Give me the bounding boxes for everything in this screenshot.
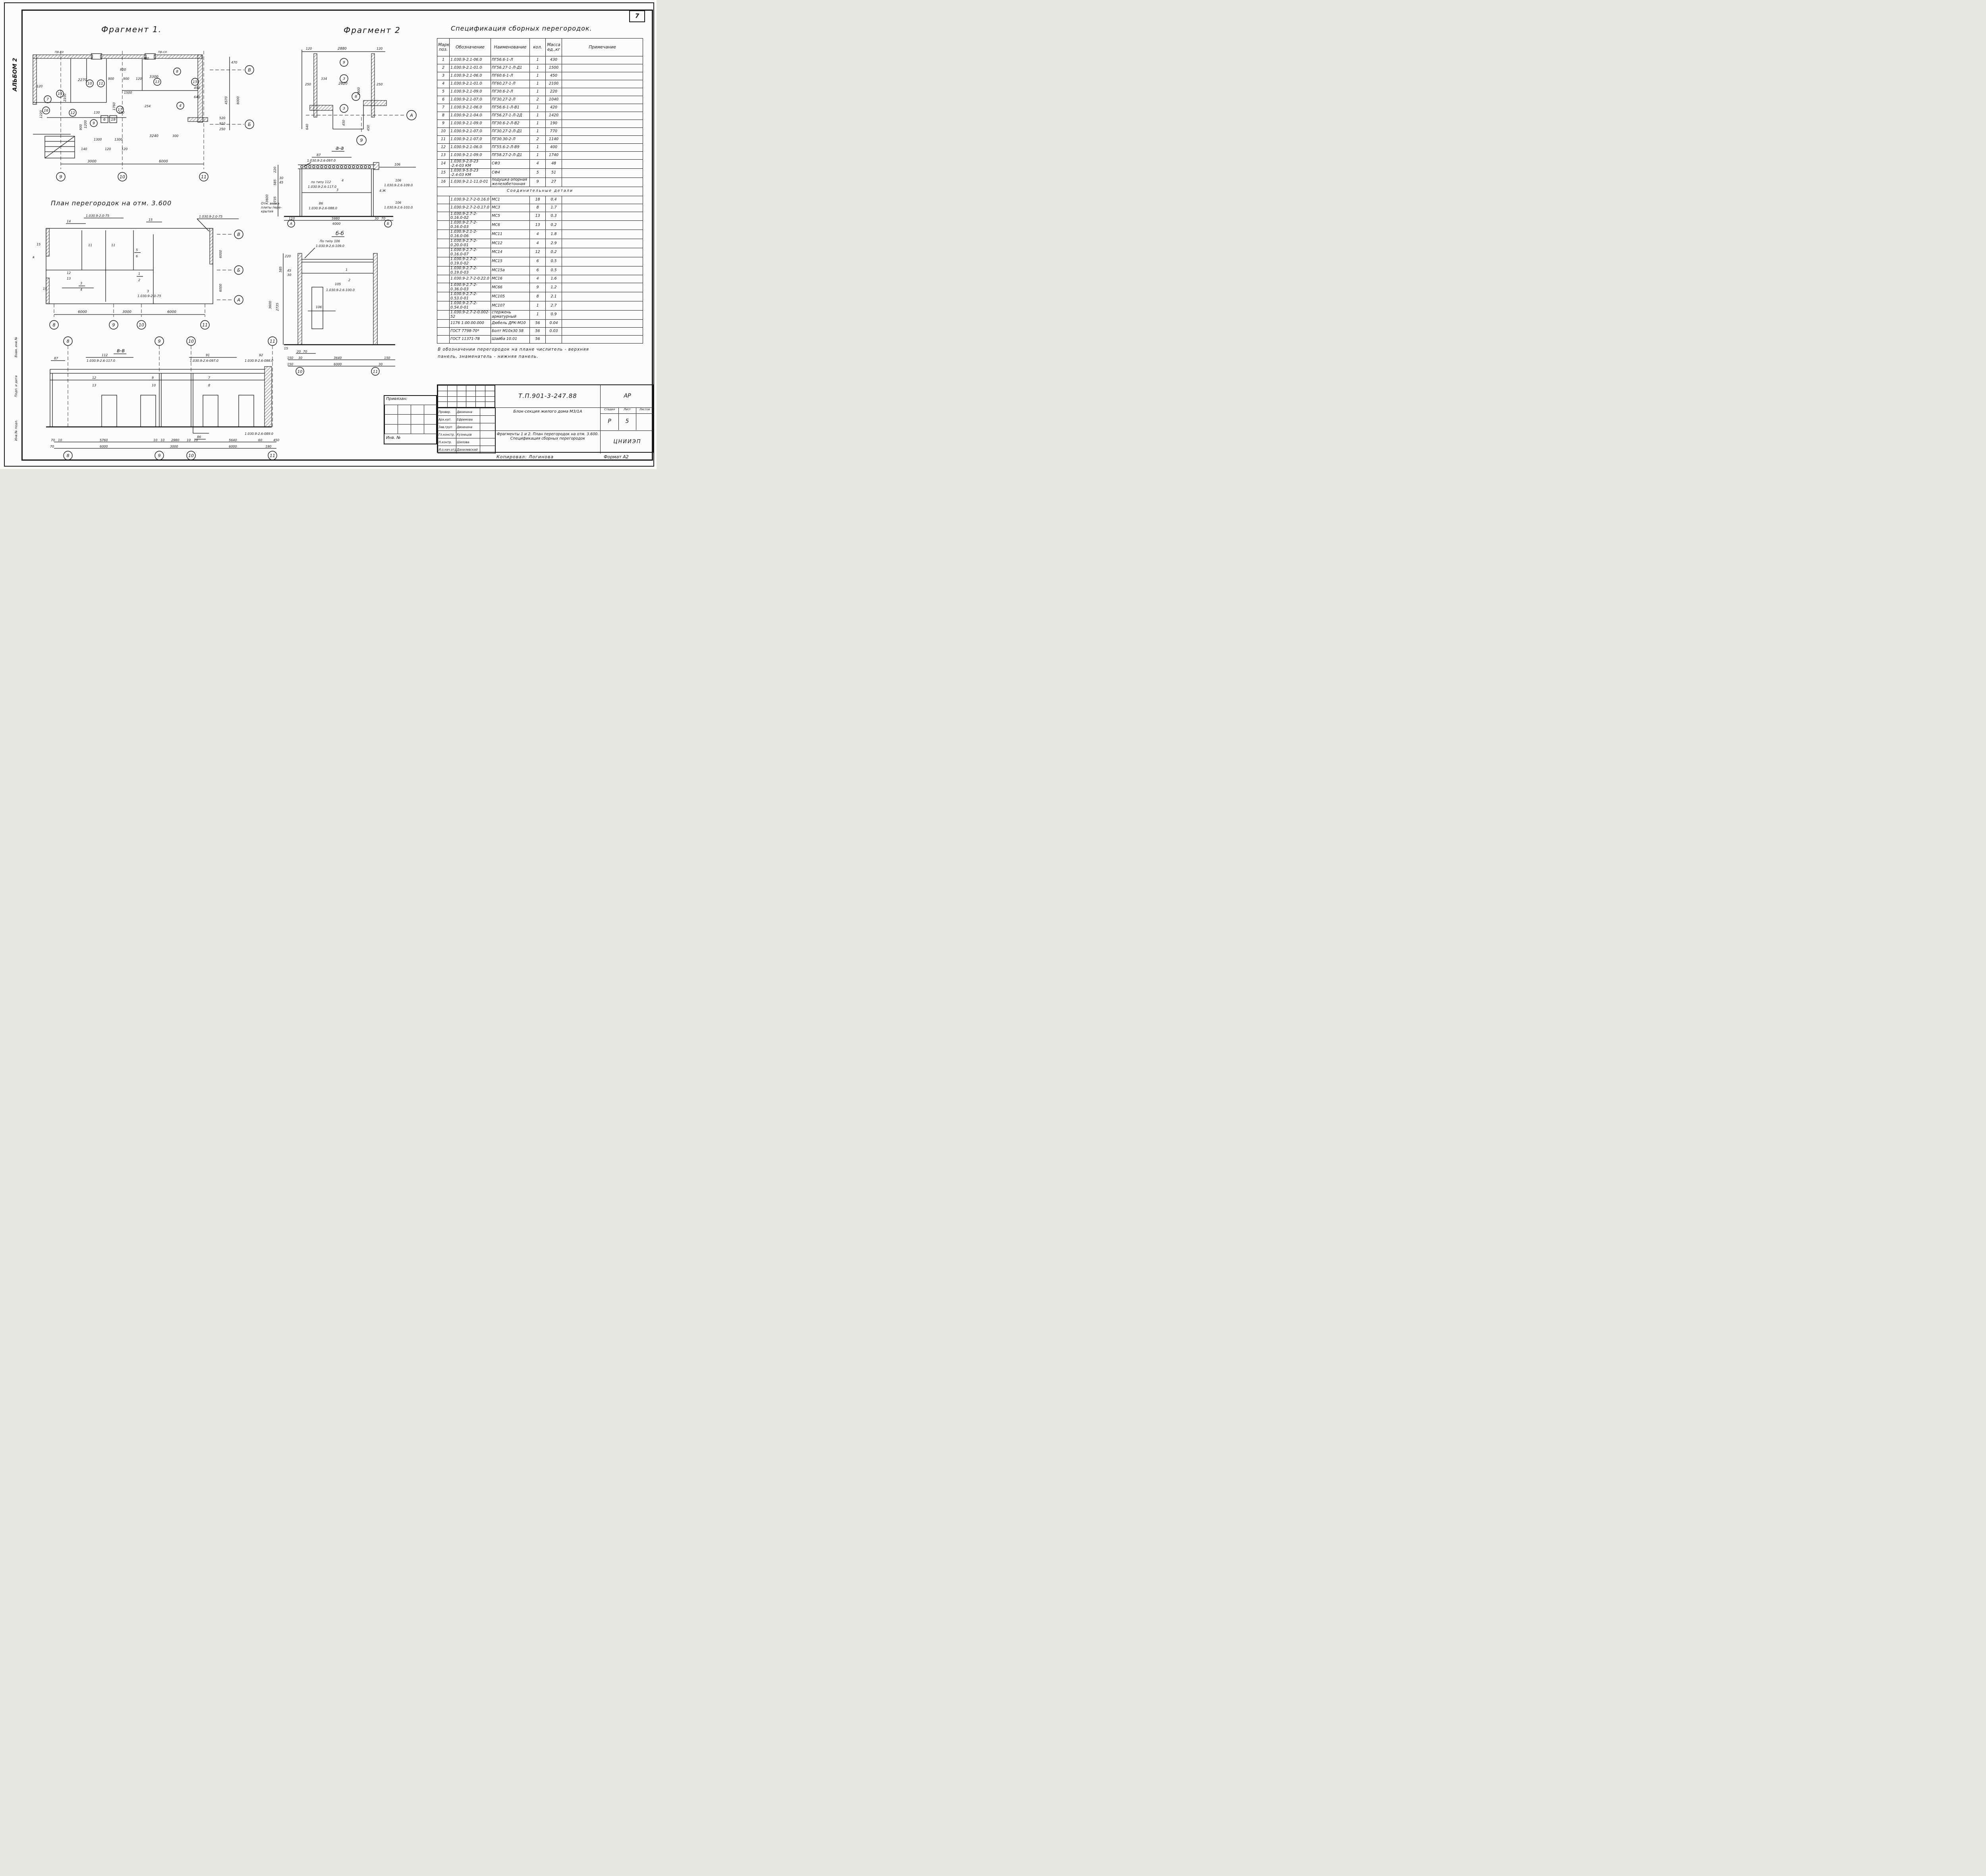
svg-text:105: 105	[335, 282, 341, 286]
table-cell	[562, 104, 643, 112]
note-line-2: панель, знаменатель - нижняя панель.	[438, 353, 652, 361]
table-cell: 4	[530, 275, 546, 283]
svg-text:Б: Б	[237, 268, 240, 273]
svg-text:16: 16	[44, 109, 48, 113]
svg-text:3: 3	[343, 77, 345, 81]
table-cell	[562, 212, 643, 221]
svg-text:11: 11	[99, 82, 103, 86]
table-cell: 1.030.9-2.7-2-0.19.0-02	[450, 257, 491, 266]
table-cell: ГОСТ 7798-70*	[450, 327, 491, 335]
table-cell: 5	[530, 168, 546, 178]
title-block: Т.П.901-3-247.88 АР Провер.ДвоининаАрх.к…	[437, 384, 653, 453]
table-row: 1.030.9-2.7-2-0.17.0МС381.7	[437, 204, 643, 212]
svg-text:б-б: б-б	[336, 231, 344, 237]
stage-value: Р	[601, 413, 619, 430]
table-cell: 4	[530, 239, 546, 248]
table-cell	[562, 56, 643, 64]
table-cell: 4	[530, 160, 546, 169]
table-cell: 1	[530, 120, 546, 128]
svg-text:пр.со: пр.со	[55, 50, 64, 54]
table-cell: Двоинина	[456, 423, 480, 431]
svg-text:15: 15	[43, 287, 47, 291]
svg-text:120: 120	[306, 47, 312, 50]
table-cell: 27	[546, 178, 562, 187]
svg-text:2: 2	[138, 278, 140, 282]
table-cell	[437, 230, 450, 239]
table-row: 131.030.9-2.1-09.0ПГ58.27-2-Л-Д111740	[437, 152, 643, 160]
svg-text:45: 45	[279, 181, 283, 184]
svg-text:91: 91	[206, 353, 210, 357]
table-cell: СФ4	[491, 168, 530, 178]
svg-text:120: 120	[122, 147, 128, 151]
svg-text:5760: 5760	[100, 438, 108, 442]
table-cell: ПГ60.27-1-Л	[491, 80, 530, 88]
table-cell: 2.1	[546, 292, 562, 301]
fragment2-drawing: 250 2620 250 120 2880 120 334 1900 450 6…	[286, 38, 421, 149]
svg-text:7: 7	[208, 376, 211, 380]
table-cell: 2.7	[546, 301, 562, 311]
svg-text:1.030.9-2.0-75: 1.030.9-2.0-75	[199, 215, 222, 218]
svg-text:470: 470	[231, 61, 237, 64]
spec-table: Марка поз. Обозначение Наименование кол.…	[437, 38, 643, 344]
table-cell: 2	[437, 64, 450, 72]
table-cell: 0.3	[546, 212, 562, 221]
table-cell: 56	[530, 335, 546, 343]
table-cell: ПГ56.6-1-Л-В1	[491, 104, 530, 112]
col-qty: кол.	[530, 39, 546, 56]
svg-text:10: 10	[187, 438, 191, 442]
svg-text:Б: Б	[387, 222, 389, 226]
table-cell	[562, 319, 643, 327]
table-row: Зав.групДвоинина	[438, 423, 496, 431]
svg-text:15: 15	[149, 218, 153, 222]
svg-text:3000: 3000	[170, 445, 178, 448]
table-cell: ПГ58.27-2-Л-Д1	[491, 152, 530, 160]
svg-text:6000: 6000	[78, 310, 87, 314]
svg-text:А: А	[410, 113, 413, 118]
svg-text:17: 17	[118, 108, 122, 112]
table-cell: стержень арматурный	[491, 310, 530, 319]
table-row: 1.030.9-2.7-2-0.002-52стержень арматурны…	[437, 310, 643, 319]
table-cell: 1.030.9-2.1-01.0	[450, 64, 491, 72]
table-cell	[437, 257, 450, 266]
table-cell: 9	[437, 120, 450, 128]
table-cell	[562, 112, 643, 120]
table-row: 141.030.9-2.0-23 -2.4-03 КМСФ3448	[437, 160, 643, 169]
svg-text:120: 120	[136, 77, 142, 81]
table-cell	[437, 335, 450, 343]
svg-text:70: 70	[50, 445, 54, 448]
table-cell: 1	[530, 301, 546, 311]
svg-text:900: 900	[108, 77, 114, 81]
table-cell: Данилевский	[456, 446, 480, 454]
svg-text:585: 585	[279, 266, 282, 272]
table-row: 1.030.9-2.7-2-0.16.0-03МС6130.2	[437, 221, 643, 230]
frag2-axis-bubbles: А 9	[357, 110, 416, 145]
table-row: 91.030.9-2.1-09.0ПГ30.6-2-Л-В21190	[437, 120, 643, 128]
svg-text:9: 9	[112, 322, 115, 328]
svg-text:10: 10	[120, 174, 125, 179]
svg-text:1.030.9-2.6-100.0: 1.030.9-2.6-100.0	[326, 288, 355, 292]
svg-text:11: 11	[270, 453, 275, 458]
table-cell: 1.030.9-2.7-2-0.20.0-01	[450, 239, 491, 248]
table-cell: 5	[437, 88, 450, 96]
table-cell: 420	[546, 104, 562, 112]
table-cell	[562, 120, 643, 128]
table-cell: 1.030.9-2.7-2-0.53.0-01	[450, 292, 491, 301]
table-cell: 6	[530, 266, 546, 275]
svg-text:1.030.9-2.6-109.0: 1.030.9-2.6-109.0	[384, 183, 413, 187]
svg-text:1.030.9-2.6-097.0: 1.030.9-2.6-097.0	[190, 359, 218, 363]
table-cell: ПГ56.6-1-Л	[491, 56, 530, 64]
sheet-label: Лист	[618, 408, 636, 414]
svg-text:150: 150	[287, 363, 293, 366]
section-aa-drawing: а-а 87 1.030.9-2.6-097.0 3 4 по типу 112…	[260, 145, 418, 228]
roles-rows: Провер.ДвоининаАрх.кат.ЕфремоваЗав.групД…	[438, 408, 496, 454]
album-label: АЛЬБОМ 2	[12, 58, 18, 91]
table-cell: МС3	[491, 204, 530, 212]
table-cell: 56	[530, 327, 546, 335]
svg-text:6: 6	[103, 118, 106, 122]
table-cell	[437, 292, 450, 301]
svg-text:300: 300	[172, 134, 178, 138]
svg-text:120: 120	[377, 47, 383, 50]
table-row: 81.030.9-2.1-04.0ПГ56.27-1-Л-2Д11420	[437, 112, 643, 120]
table-cell	[480, 416, 496, 423]
table-cell	[437, 266, 450, 275]
format-note: Формат А2	[604, 454, 629, 459]
table-cell: МС66	[491, 283, 530, 292]
table-cell: 7	[437, 104, 450, 112]
table-row: 161.030.9-2.1-11.0-01подушка опорная жел…	[437, 178, 643, 187]
svg-text:450: 450	[273, 438, 279, 442]
svg-text:120: 120	[105, 147, 111, 151]
table-cell	[562, 136, 643, 144]
table-row: 31.030.9-2.1-06.0ПГ60.6-1-Л1450	[437, 72, 643, 80]
svg-text:6000: 6000	[332, 222, 340, 226]
table-cell: Двоинина	[456, 408, 480, 416]
svg-text:30: 30	[279, 176, 283, 180]
page-number: 7	[629, 10, 645, 22]
table-cell	[480, 431, 496, 438]
table-row: 1.030.9-2.7-2-0.20.0-01МС1242.9	[437, 239, 643, 248]
svg-text:5: 5	[136, 248, 138, 252]
svg-text:150: 150	[384, 356, 390, 360]
table-row: 1.030.9-2.7-2-0.16.0-07МС14120.2	[437, 248, 643, 257]
table-cell: МС15	[491, 257, 530, 266]
svg-text:10: 10	[58, 438, 62, 442]
table-cell	[562, 239, 643, 248]
table-row: ГОСТ 11371-78Шайба 10.0156	[437, 335, 643, 343]
table-cell: ПГ30.27-2-Л-Д1	[491, 128, 530, 136]
table-row: 151.030.9-5.0-23 -2.4-03 КМСФ4551	[437, 168, 643, 178]
svg-text:1.030.9-2.6-117.0: 1.030.9-2.6-117.0	[308, 185, 336, 189]
svg-text:2880: 2880	[338, 47, 347, 51]
svg-text:1.030.9-2.6-089.0: 1.030.9-2.6-089.0	[245, 432, 273, 436]
roles-table: Провер.ДвоининаАрх.кат.ЕфремоваЗав.групД…	[438, 408, 495, 454]
svg-text:3: 3	[147, 290, 149, 293]
svg-text:11: 11	[373, 370, 378, 374]
table-cell	[562, 275, 643, 283]
svg-text:8: 8	[53, 322, 56, 328]
svg-text:1.030.9-2.6-098.0: 1.030.9-2.6-098.0	[245, 359, 273, 363]
table-cell: ПГ60.6-1-Л	[491, 72, 530, 80]
table-cell	[562, 221, 643, 230]
svg-text:9: 9	[152, 376, 154, 380]
table-cell: 1.030.9-2.7-2-0.16.0	[450, 196, 491, 204]
svg-text:1.030.9-2.6-109.0: 1.030.9-2.6-109.0	[316, 244, 344, 248]
table-cell	[562, 196, 643, 204]
svg-text:8: 8	[176, 70, 178, 74]
svg-text:106: 106	[395, 179, 401, 182]
table-cell: 1.030.9-2.1-07.0	[450, 128, 491, 136]
table-cell: 1	[530, 88, 546, 96]
svg-text:910: 910	[219, 122, 225, 125]
svg-text:220: 220	[273, 167, 277, 173]
table-cell	[480, 423, 496, 431]
svg-text:А: А	[237, 297, 240, 303]
svg-text:15: 15	[37, 243, 41, 246]
table-cell: 2	[530, 96, 546, 104]
plan-title: План перегородок на отм. 3.600	[51, 199, 172, 207]
svg-text:14: 14	[58, 92, 62, 96]
table-row: 1.030.9-2.7-2-0.19.0-03МС15а60.5	[437, 266, 643, 275]
table-cell	[437, 275, 450, 283]
svg-text:пр.со: пр.со	[158, 50, 167, 54]
table-cell: 1.030.9-2.1-07.0	[450, 136, 491, 144]
table-row: 41.030.9-2.1-01.0ПГ60.27-1-Л12100	[437, 80, 643, 88]
table-row: 1176 1.00.00.000Дюбель ДРК-М10560.04	[437, 319, 643, 327]
svg-text:106: 106	[394, 163, 400, 166]
table-cell	[546, 335, 562, 343]
svg-text:10: 10	[188, 453, 194, 458]
table-cell: Зав.груп	[438, 423, 456, 431]
table-cell	[562, 257, 643, 266]
table-cell: Шайба 10.01	[491, 335, 530, 343]
plan-3600-drawing: 1.030.9-2.0-75 14 15 1.030.9-2.0-75 15 1…	[22, 210, 261, 333]
table-cell: 15	[437, 168, 450, 178]
table-row: Н.контр.Шилова	[438, 438, 496, 446]
svg-text:8: 8	[208, 384, 210, 387]
table-row: 51.030.9-2.1-09.0ПГ30.6-2-Л1220	[437, 88, 643, 96]
svg-text:10: 10	[139, 322, 144, 328]
table-cell: 11	[437, 136, 450, 144]
table-cell: 1.8	[546, 230, 562, 239]
col-note: Примечание	[562, 39, 643, 56]
table-cell: 220	[546, 88, 562, 96]
svg-text:45: 45	[287, 269, 291, 272]
table-cell	[562, 230, 643, 239]
table-row: Арх.кат.Ефремова	[438, 416, 496, 423]
spec-rows: 11.030.9-2.1-06.0ПГ56.6-1-Л143021.030.9-…	[437, 56, 643, 187]
svg-text:10: 10	[160, 438, 164, 442]
svg-text:8: 8	[67, 453, 70, 458]
svg-text:6000: 6000	[219, 284, 222, 292]
table-cell: МС107	[491, 301, 530, 311]
svg-text:10: 10	[152, 384, 156, 387]
table-cell: 1140	[546, 136, 562, 144]
svg-text:106: 106	[316, 305, 322, 309]
table-cell: 1.030.9-2.1-04.0	[450, 112, 491, 120]
svg-text:10: 10	[194, 438, 198, 442]
table-cell: 6	[530, 257, 546, 266]
svg-text:9: 9	[343, 61, 345, 65]
table-cell: 1	[437, 56, 450, 64]
table-cell: 1.030.9-2.1-06.0	[450, 72, 491, 80]
svg-text:12: 12	[92, 376, 96, 380]
table-cell: 1.030.9-2.1-09.0	[450, 152, 491, 160]
svg-text:10: 10	[153, 438, 157, 442]
sheet-title: Фрагменты 1 и 2. План перегородок на отм…	[495, 431, 601, 454]
svg-text:254: 254	[145, 104, 151, 108]
table-cell: 2.9	[546, 239, 562, 248]
table-cell: ПГ56.27-1-Л-2Д	[491, 112, 530, 120]
slab-voids	[301, 166, 371, 168]
svg-text:585: 585	[273, 179, 277, 185]
table-cell: 10	[437, 128, 450, 136]
table-row: 1.030.9-2.7-2-0.36.0-03МС6691.2	[437, 283, 643, 292]
connectors-subheader: Соединительные детали	[437, 187, 643, 196]
table-row: И.о.нач.отдДанилевский	[438, 446, 496, 454]
table-cell: 1040	[546, 96, 562, 104]
table-cell: 1.030.9-2.1-06.0	[450, 56, 491, 64]
table-cell	[562, 178, 643, 187]
sec-vv-bottom-bubbles: 8 9 10 11	[64, 451, 277, 460]
table-cell: 1.030.9-2.0-23 -2.4-03 КМ	[450, 160, 491, 169]
table-row: 101.030.9-2.1-07.0ПГ30.27-2-Л-Д11770	[437, 128, 643, 136]
table-cell: МС11	[491, 230, 530, 239]
svg-text:4: 4	[179, 104, 182, 108]
svg-text:11: 11	[202, 322, 208, 328]
svg-text:140: 140	[81, 147, 87, 151]
sheet-value: 5	[618, 413, 636, 430]
plan-note: В обозначении перегородок на плане числи…	[438, 346, 652, 361]
svg-text:900: 900	[79, 124, 83, 130]
svg-text:6000: 6000	[167, 310, 176, 314]
svg-text:4.Ж: 4.Ж	[379, 189, 386, 193]
table-cell: 1.6	[546, 275, 562, 283]
table-cell: 1.030.9-2.7-2-0.19.0-03	[450, 266, 491, 275]
svg-text:190: 190	[265, 445, 271, 448]
table-cell: 18	[530, 196, 546, 204]
svg-text:334: 334	[321, 77, 327, 81]
svg-text:10: 10	[188, 339, 194, 344]
svg-text:450: 450	[367, 125, 370, 131]
table-cell: 51	[546, 168, 562, 178]
table-cell	[562, 292, 643, 301]
svg-text:3: 3	[80, 282, 82, 285]
table-cell: 1.030.9-2.7-2-0.16.0-07	[450, 248, 491, 257]
table-row: 71.030.9-2.1-06.0ПГ56.6-1-Л-В11420	[437, 104, 643, 112]
svg-text:6000: 6000	[159, 160, 168, 164]
svg-text:3240: 3240	[149, 134, 158, 138]
table-cell: 2100	[546, 80, 562, 88]
svg-text:12: 12	[70, 111, 75, 115]
table-cell: 1.030.9-2.7-2-0.36.0-03	[450, 283, 491, 292]
table-row: Провер.Двоинина	[438, 408, 496, 416]
svg-text:450: 450	[342, 120, 346, 126]
svg-text:250: 250	[219, 127, 225, 131]
svg-text:10: 10	[87, 82, 92, 86]
table-cell: 1.030.9-2.7-2-0.002-52	[450, 310, 491, 319]
svg-text:640: 640	[305, 124, 309, 130]
privyazan-grid	[384, 405, 437, 434]
table-row: 1.030.9-2.7-2-0.19.0-02МС1560.5	[437, 257, 643, 266]
table-row: Гл.констр.Кузнецов	[438, 431, 496, 438]
table-cell: МС12	[491, 239, 530, 248]
table-cell: 1	[530, 80, 546, 88]
table-cell: 190	[546, 120, 562, 128]
table-cell: Болт М10х30 58	[491, 327, 530, 335]
col-designation: Обозначение	[450, 39, 491, 56]
svg-text:6: 6	[136, 255, 138, 258]
svg-text:14: 14	[67, 220, 71, 223]
table-cell	[562, 96, 643, 104]
table-cell	[562, 327, 643, 335]
table-cell	[437, 239, 450, 248]
svg-text:8: 8	[355, 95, 357, 99]
svg-text:1300: 1300	[114, 138, 122, 141]
stage-block: Стадия Лист Листов Р 5	[601, 408, 654, 431]
table-cell: Провер.	[438, 408, 456, 416]
svg-text:13: 13	[155, 80, 160, 84]
table-cell: Дюбель ДРК-М10	[491, 319, 530, 327]
doc-number: Т.П.901-3-247.88	[495, 385, 601, 408]
note-line-1: В обозначении перегородок на плане числи…	[438, 346, 652, 353]
table-cell: 2	[530, 136, 546, 144]
svg-text:800: 800	[120, 68, 126, 71]
col-name: Наименование	[491, 39, 530, 56]
table-cell: Арх.кат.	[438, 416, 456, 423]
table-cell: 8	[530, 204, 546, 212]
margin-stamp-inv: Инв.№ подл.	[14, 420, 18, 441]
table-cell: 400	[546, 144, 562, 152]
table-cell: 4	[530, 230, 546, 239]
sheets-label: Листов	[636, 408, 653, 414]
table-cell: МС5	[491, 212, 530, 221]
table-cell: 0.2	[546, 248, 562, 257]
table-cell	[437, 301, 450, 311]
svg-text:9: 9	[158, 453, 161, 458]
table-cell: 1.030.9-2.1-2-0.16.0-06	[450, 230, 491, 239]
svg-text:2: 2	[348, 278, 350, 282]
svg-text:3000: 3000	[87, 160, 97, 164]
table-cell: ПГ55.6-2-Л-В9	[491, 144, 530, 152]
svg-text:в: в	[33, 255, 35, 259]
svg-text:6000: 6000	[100, 445, 108, 448]
table-cell: 1.030.9-2.1-07.0	[450, 96, 491, 104]
svg-text:2735: 2735	[276, 303, 279, 311]
table-cell: МС1	[491, 196, 530, 204]
svg-text:60: 60	[258, 438, 262, 442]
table-cell	[437, 204, 450, 212]
svg-text:106: 106	[395, 201, 401, 205]
table-cell	[562, 335, 643, 343]
svg-text:900: 900	[123, 77, 129, 81]
svg-text:плиты пере-: плиты пере-	[261, 206, 282, 209]
svg-text:220: 220	[285, 255, 291, 258]
table-cell: МС14	[491, 248, 530, 257]
table-cell: 0.04	[546, 319, 562, 327]
svg-text:1: 1	[346, 268, 348, 272]
table-cell: 1.7	[546, 204, 562, 212]
margin-stamp-podp: Подп. и дата	[14, 376, 18, 398]
col-mass: Масса ед.,кг	[546, 39, 562, 56]
table-cell: 0.4	[546, 196, 562, 204]
svg-text:1: 1	[138, 272, 140, 276]
table-cell: 13	[530, 212, 546, 221]
table-row: 1.030.9-2.7-2-0.16.0-02МС5130.3	[437, 212, 643, 221]
